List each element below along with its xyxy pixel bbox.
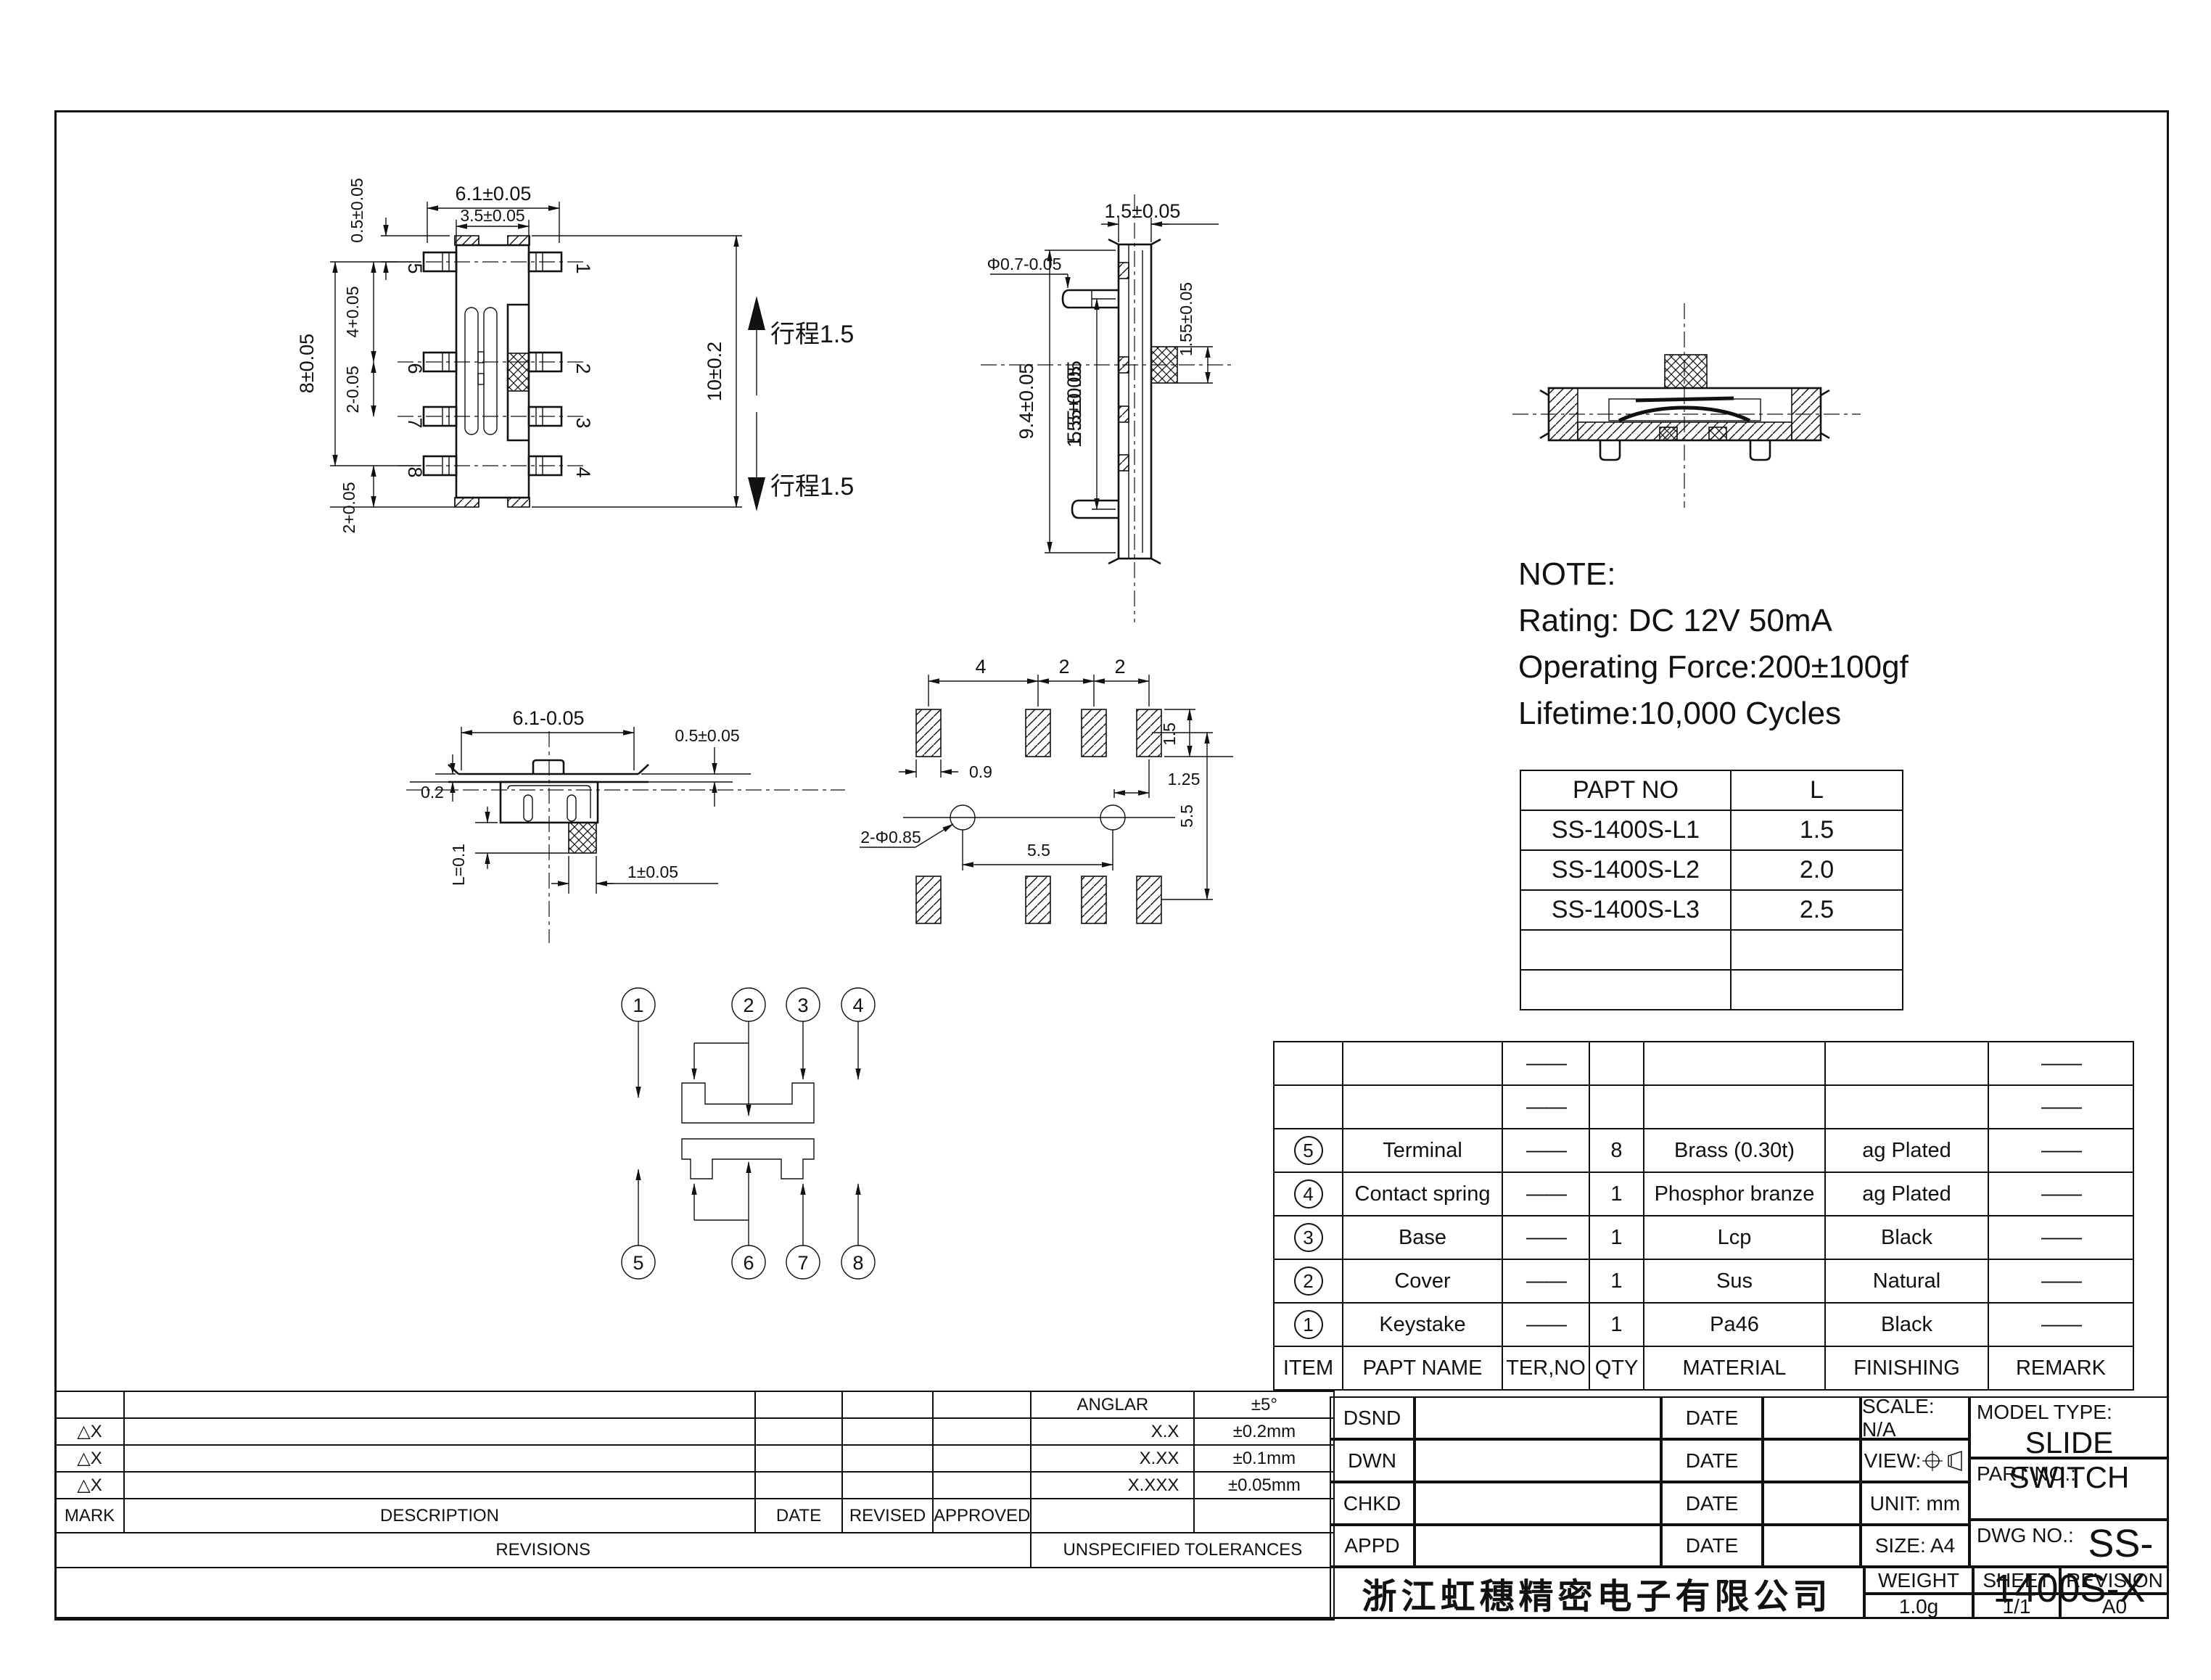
revisions-title: REVISIONS	[55, 1533, 1031, 1568]
dim-front-pin-offset: 0.5±0.05	[347, 178, 366, 242]
date-value-cell	[1763, 1396, 1861, 1439]
engineering-drawing-page: { "front_view": { "dim_width_outer": "6.…	[0, 0, 2211, 1680]
tolerance-value: ±0.05mm	[1194, 1472, 1334, 1499]
bom-material: Pa46	[1644, 1303, 1825, 1346]
dim-front-pins-span: 8±0.05	[296, 334, 318, 393]
bom-dash: ——	[1502, 1129, 1589, 1172]
tolerance-row: △X X.XXX ±0.05mm	[55, 1472, 1334, 1499]
section-view	[1512, 303, 1861, 508]
bom-finishing: Black	[1825, 1216, 1988, 1259]
tolerance-row: ANGLAR ±5°	[55, 1391, 1334, 1418]
revisions-header-row: MARK DESCRIPTION DATE REVISED APPROVED	[55, 1499, 1334, 1533]
bom-material: Sus	[1644, 1259, 1825, 1303]
bom-material: Lcp	[1644, 1216, 1825, 1259]
bom-dash: ——	[1988, 1303, 2133, 1346]
bom-header-terno: TER,NO	[1502, 1346, 1589, 1390]
dim-front-pitch-bottom: 2+0.05	[339, 482, 358, 534]
l-table-cell: 1.5	[1731, 810, 1903, 850]
tolerance-row: △X X.XX ±0.1mm	[55, 1445, 1334, 1472]
l-table-cell: SS-1400S-L1	[1520, 810, 1731, 850]
dim-pcb-row-span: 5.5	[1177, 804, 1196, 828]
revisions-header-approved: APPROVED	[933, 1499, 1031, 1533]
bom-dash: ——	[1502, 1172, 1589, 1216]
bom-material: Phosphor branze	[1644, 1172, 1825, 1216]
date-label: DATE	[1663, 1483, 1761, 1523]
pin-circle-2: 2	[743, 995, 754, 1016]
pcb-land-pattern-view: 4 2 2 0.9 1.5 1.25 2-Φ0.85 5.5 5.5	[860, 656, 1233, 923]
bom-item-number: 2	[1294, 1267, 1323, 1296]
dim-pcb-hole-span: 5.5	[1027, 841, 1050, 860]
side-view: 1.5±0.05 Φ0.7-0.05 9.4±0.05 1.55±0.05 5.…	[981, 194, 1233, 622]
dim-bottom-knob-w: 1±0.05	[627, 862, 678, 881]
bom-table: —— —— —— —— 5 Terminal —— 8 Brass (0.30t…	[1273, 1041, 2134, 1391]
dim-side-knob: 1.55±0.05	[1177, 282, 1195, 356]
dim-bottom-knob-len: L=0.1	[449, 844, 468, 886]
dim-pcb-pitch-c: 2	[1114, 656, 1125, 678]
l-table-header-l: L	[1731, 770, 1903, 810]
part-no-label: PART NO.:	[1971, 1459, 2167, 1486]
dim-pcb-holes: 2-Φ0.85	[860, 828, 921, 847]
revisions-title-row: REVISIONS UNSPECIFIED TOLERANCES	[55, 1533, 1334, 1568]
note-block: NOTE: Rating: DC 12V 50mA Operating Forc…	[1518, 551, 1909, 737]
l-table-cell-empty	[1731, 930, 1903, 970]
bottom-view: 6.1-0.05 0.5±0.05 0.2 L=0.1 1±0.05	[406, 707, 845, 943]
bom-header-row: ITEM PAPT NAME TER,NO QTY MATERIAL FINIS…	[1274, 1346, 2133, 1390]
company-name: 浙江虹穗精密电子有限公司	[1331, 1568, 1863, 1618]
dim-pcb-edge: 1.25	[1168, 770, 1201, 788]
bom-empty-row: —— ——	[1274, 1042, 2133, 1085]
dim-front-pitch-top: 4+0.05	[343, 287, 362, 338]
dim-front-height: 10±0.2	[704, 342, 725, 401]
revisions-header-date: DATE	[755, 1499, 842, 1533]
dsnd-signature-cell	[1415, 1396, 1661, 1439]
tolerance-value: ±0.2mm	[1194, 1418, 1334, 1445]
tolerance-range: X.XX	[1031, 1445, 1194, 1472]
dim-bottom-width: 6.1-0.05	[512, 707, 584, 729]
bom-dash: ——	[1988, 1172, 2133, 1216]
sheet-label: SHEET	[1975, 1568, 2059, 1592]
tolerance-range: X.XXX	[1031, 1472, 1194, 1499]
date-value-cell	[1763, 1482, 1861, 1525]
bom-header-name: PAPT NAME	[1343, 1346, 1502, 1390]
bom-finishing: Black	[1825, 1303, 1988, 1346]
bom-qty: 1	[1589, 1216, 1644, 1259]
bom-qty: 1	[1589, 1172, 1644, 1216]
tolerance-range: ANGLAR	[1031, 1391, 1194, 1418]
bom-finishing: ag Plated	[1825, 1172, 1988, 1216]
bom-part-name: Cover	[1343, 1259, 1502, 1303]
dim-front-width-inner: 3.5±0.05	[460, 206, 524, 225]
bom-part-name: Terminal	[1343, 1129, 1502, 1172]
dim-pcb-pitch-b: 2	[1058, 656, 1069, 678]
pin-label-7: 7	[404, 417, 426, 428]
bom-part-name: Keystake	[1343, 1303, 1502, 1346]
bom-dash: ——	[1502, 1259, 1589, 1303]
l-table-cell-empty	[1520, 970, 1731, 1010]
bom-dash: ——	[1502, 1303, 1589, 1346]
note-lifetime: Lifetime:10,000 Cycles	[1518, 691, 1909, 737]
revisions-header-description: DESCRIPTION	[124, 1499, 755, 1533]
dim-side-pins-span2: 5.5±0.05	[1063, 366, 1085, 442]
l-table-cell: SS-1400S-L2	[1520, 850, 1731, 890]
travel-up-label: 行程1.5	[770, 321, 854, 348]
note-rating: Rating: DC 12V 50mA	[1518, 598, 1909, 644]
title-block: DSND DWN CHKD APPD DATE DATE DATE DATE S…	[1330, 1396, 2169, 1619]
bom-part-name: Base	[1343, 1216, 1502, 1259]
dwn-signature-cell	[1415, 1439, 1661, 1482]
revisions-empty-row	[55, 1568, 1334, 1620]
bom-row-keystake: 1 Keystake —— 1 Pa46 Black ——	[1274, 1303, 2133, 1346]
dim-side-pin-dia: Φ0.7-0.05	[987, 255, 1062, 273]
pin-label-1: 1	[572, 263, 594, 273]
tolerance-row: △X X.X ±0.2mm	[55, 1418, 1334, 1445]
l-table: PAPT NO L SS-1400S-L1 1.5 SS-1400S-L2 2.…	[1520, 770, 1903, 1010]
pin-label-2: 2	[572, 363, 594, 374]
tolerance-value: ±0.1mm	[1194, 1445, 1334, 1472]
bom-finishing: Natural	[1825, 1259, 1988, 1303]
revision-mark-symbol: △X	[55, 1472, 124, 1499]
chkd-signature-cell	[1415, 1482, 1661, 1525]
l-table-cell-empty	[1520, 930, 1731, 970]
dim-side-thickness: 1.5±0.05	[1105, 200, 1181, 222]
bom-dash: ——	[1502, 1042, 1589, 1085]
date-label: DATE	[1663, 1398, 1761, 1438]
bom-dash: ——	[1988, 1042, 2133, 1085]
bom-row-cover: 2 Cover —— 1 Sus Natural ——	[1274, 1259, 2133, 1303]
pin-circle-5: 5	[633, 1252, 643, 1274]
bom-dash: ——	[1988, 1129, 2133, 1172]
bom-dash: ——	[1988, 1085, 2133, 1129]
size-label: SIZE: A4	[1862, 1526, 1968, 1565]
appd-signature-cell	[1415, 1525, 1661, 1567]
bom-dash: ——	[1988, 1259, 2133, 1303]
chkd-label: CHKD	[1331, 1483, 1413, 1523]
dim-front-width-outer: 6.1±0.05	[456, 183, 532, 205]
bom-header-material: MATERIAL	[1644, 1346, 1825, 1390]
unspecified-tolerances-label: UNSPECIFIED TOLERANCES	[1031, 1533, 1334, 1568]
revision-label: REVISION	[2062, 1568, 2167, 1592]
bom-item-number: 3	[1294, 1223, 1323, 1252]
bom-item-number: 1	[1294, 1310, 1323, 1339]
bom-qty: 1	[1589, 1303, 1644, 1346]
pin-circle-3: 3	[797, 995, 808, 1016]
third-angle-projection-icon	[1921, 1446, 1966, 1475]
dwg-no-label: DWG NO.:	[1971, 1521, 2074, 1547]
l-table-header-partno: PAPT NO	[1520, 770, 1731, 810]
bom-qty: 1	[1589, 1259, 1644, 1303]
pin-label-5: 5	[404, 263, 426, 273]
pin-label-3: 3	[572, 417, 594, 428]
pin-label-4: 4	[572, 466, 594, 477]
appd-label: APPD	[1331, 1526, 1413, 1565]
bom-part-name: Contact spring	[1343, 1172, 1502, 1216]
dim-pcb-pad-h: 1.5	[1160, 722, 1179, 746]
dim-front-pitch-mid: 2-0.05	[343, 366, 362, 413]
bom-row-base: 3 Base —— 1 Lcp Black ——	[1274, 1216, 2133, 1259]
dim-bottom-flange: 0.5±0.05	[675, 726, 739, 745]
bom-item-number: 4	[1294, 1179, 1323, 1208]
view-label: VIEW:	[1864, 1449, 1922, 1473]
tolerance-value: ±5°	[1194, 1391, 1334, 1418]
dim-pcb-pitch-a: 4	[975, 656, 986, 678]
bom-dash: ——	[1988, 1216, 2133, 1259]
bom-empty-row: —— ——	[1274, 1085, 2133, 1129]
note-operating-force: Operating Force:200±100gf	[1518, 644, 1909, 691]
model-type-label: MODEL TYPE:	[1971, 1398, 2167, 1424]
pin-circle-8: 8	[852, 1252, 863, 1274]
bom-dash: ——	[1502, 1085, 1589, 1129]
bom-row-terminal: 5 Terminal —— 8 Brass (0.30t) ag Plated …	[1274, 1129, 2133, 1172]
bom-item-number: 5	[1294, 1136, 1323, 1165]
revision-value: A0	[2062, 1595, 2167, 1618]
bom-header-remark: REMARK	[1988, 1346, 2133, 1390]
dim-bottom-gap: 0.2	[421, 783, 444, 802]
revisions-header-mark: MARK	[55, 1499, 124, 1533]
pin-circuit-diagram: 1 2 3 4 5 6 7 8	[622, 988, 875, 1279]
bom-header-qty: QTY	[1589, 1346, 1644, 1390]
bom-row-contact-spring: 4 Contact spring —— 1 Phosphor branze ag…	[1274, 1172, 2133, 1216]
pin-label-6: 6	[404, 363, 426, 374]
revision-mark-symbol: △X	[55, 1445, 124, 1472]
date-value-cell	[1763, 1525, 1861, 1567]
bom-qty: 8	[1589, 1129, 1644, 1172]
pin-circle-7: 7	[797, 1252, 808, 1274]
date-label: DATE	[1663, 1526, 1761, 1565]
dim-pcb-pad-w: 0.9	[969, 762, 992, 781]
date-label: DATE	[1663, 1441, 1761, 1481]
tolerance-range: X.X	[1031, 1418, 1194, 1445]
dwn-label: DWN	[1331, 1441, 1413, 1481]
front-view: 5 6 7 8 1 2 3 4 6.1±0.05 3.5±0.05 0.5±0.…	[296, 178, 854, 533]
bom-dash: ——	[1502, 1216, 1589, 1259]
pin-circle-6: 6	[743, 1252, 754, 1274]
pin-circle-1: 1	[633, 995, 643, 1016]
revisions-table: ANGLAR ±5° △X X.X ±0.2mm △X X.XX ±0.1mm …	[54, 1391, 1335, 1621]
bom-finishing: ag Plated	[1825, 1129, 1988, 1172]
revision-mark-symbol: △X	[55, 1418, 124, 1445]
weight-label: WEIGHT	[1866, 1568, 1972, 1592]
revisions-header-revised: REVISED	[842, 1499, 933, 1533]
pin-label-8: 8	[404, 466, 426, 477]
l-table-cell: SS-1400S-L3	[1520, 890, 1731, 930]
dsnd-label: DSND	[1331, 1398, 1413, 1438]
l-table-cell-empty	[1731, 970, 1903, 1010]
date-value-cell	[1763, 1439, 1861, 1482]
scale-label: SCALE: N/A	[1862, 1398, 1968, 1438]
note-title: NOTE:	[1518, 551, 1909, 598]
bom-header-item: ITEM	[1274, 1346, 1343, 1390]
dim-side-height: 9.4±0.05	[1016, 363, 1037, 440]
sheet-value: 1/1	[1975, 1595, 2059, 1618]
l-table-cell: 2.0	[1731, 850, 1903, 890]
travel-down-label: 行程1.5	[770, 473, 854, 501]
weight-value: 1.0g	[1866, 1595, 1972, 1618]
pin-circle-4: 4	[852, 995, 863, 1016]
bom-material: Brass (0.30t)	[1644, 1129, 1825, 1172]
l-table-cell: 2.5	[1731, 890, 1903, 930]
unit-label: UNIT: mm	[1862, 1483, 1968, 1523]
bom-header-finishing: FINISHING	[1825, 1346, 1988, 1390]
